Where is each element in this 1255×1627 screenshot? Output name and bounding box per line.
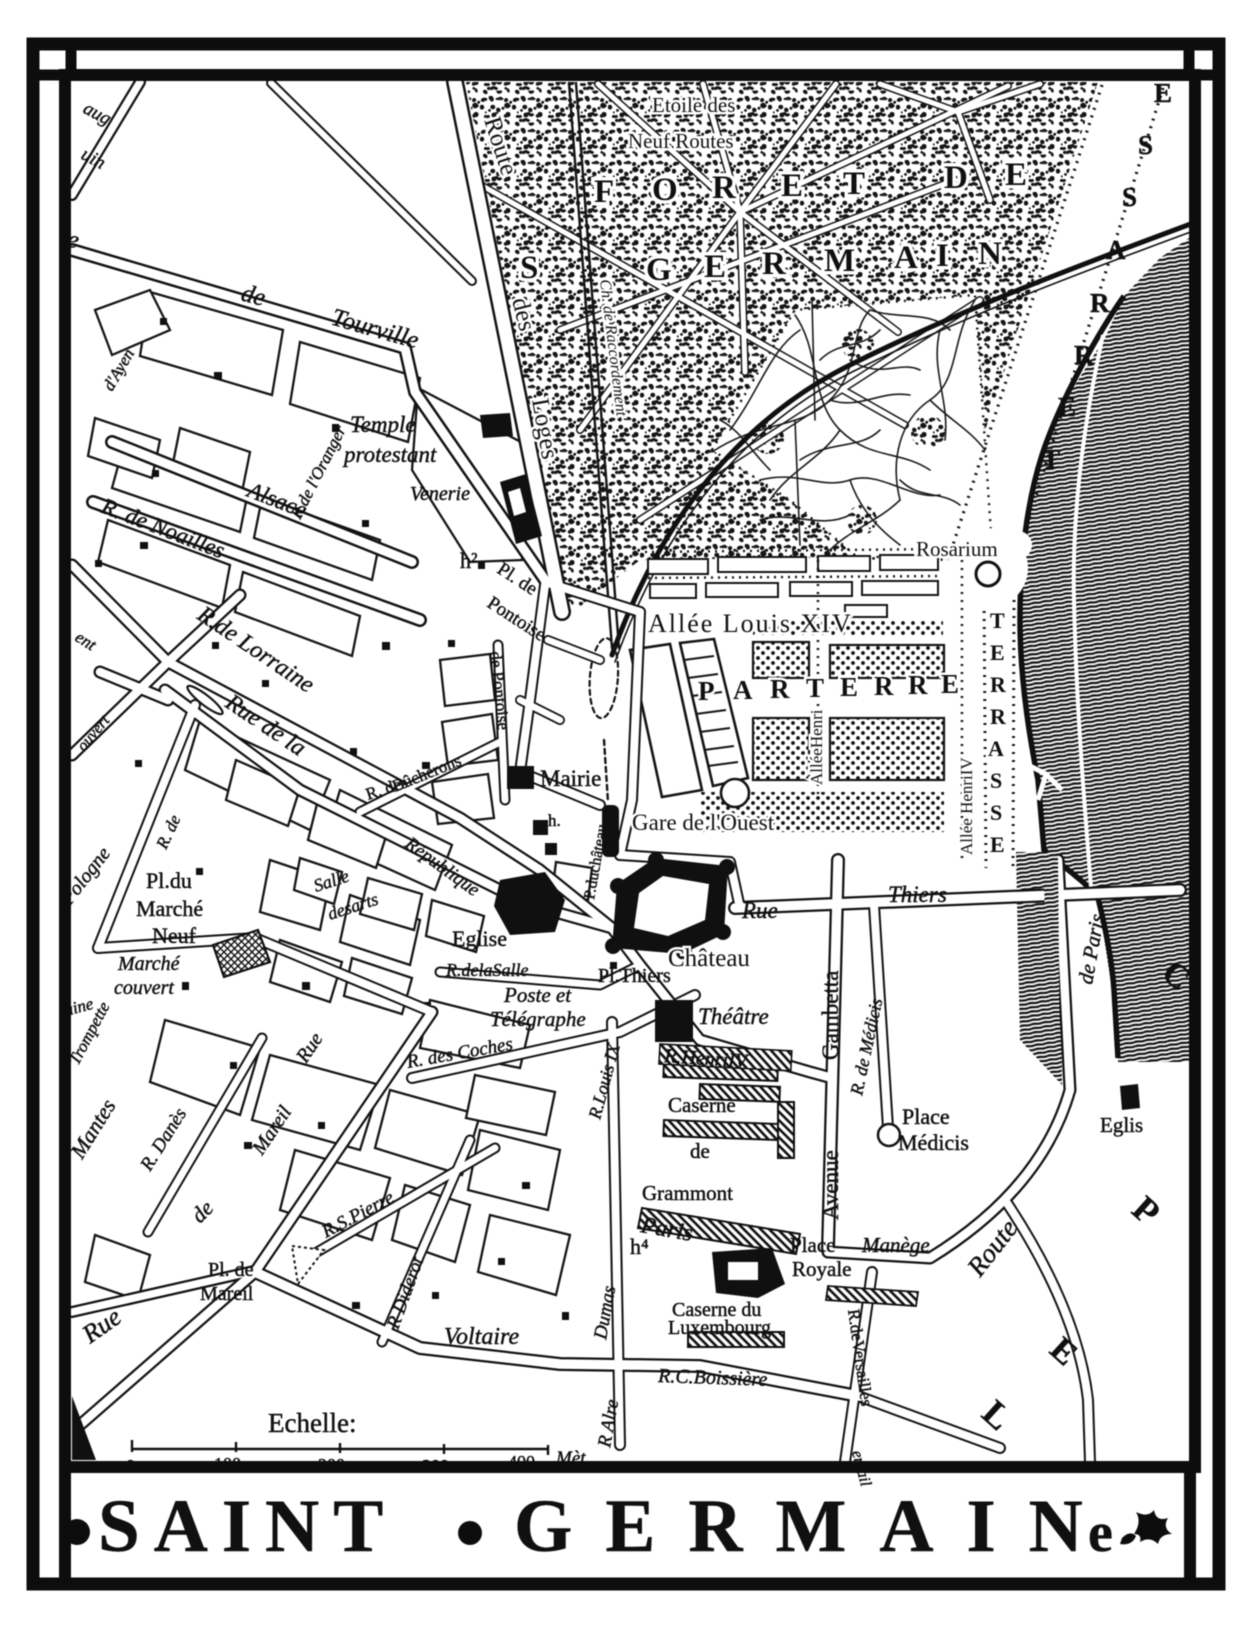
svg-text:Place: Place [902, 1104, 950, 1129]
svg-text:M: M [824, 243, 855, 279]
svg-text:h²: h² [460, 548, 478, 573]
svg-text:Royale: Royale [792, 1257, 851, 1281]
svg-text:S: S [1122, 182, 1137, 212]
svg-text:A: A [1106, 235, 1126, 265]
svg-text:A: A [988, 736, 1004, 761]
svg-text:Rue: Rue [741, 898, 778, 923]
svg-text:D: D [944, 160, 968, 196]
svg-text:E: E [990, 640, 1005, 665]
svg-text:Etoile des: Etoile des [652, 93, 735, 117]
svg-text:Temple: Temple [350, 412, 416, 437]
svg-text:Luxembourg: Luxembourg [668, 1317, 771, 1339]
svg-text:E: E [781, 168, 803, 204]
svg-text:Gare de l'Ouest: Gare de l'Ouest [632, 810, 775, 835]
svg-text:N: N [978, 236, 1002, 272]
svg-text:Pl.Thiers: Pl.Thiers [598, 965, 671, 987]
svg-text:R: R [1074, 340, 1094, 370]
svg-text:Place: Place [790, 1233, 835, 1257]
svg-text:Mareil: Mareil [200, 1283, 254, 1305]
svg-text:T: T [1042, 444, 1060, 474]
svg-text:Mairie: Mairie [540, 766, 601, 791]
svg-text:GERMAIN: GERMAIN [514, 1485, 1116, 1568]
svg-text:S: S [990, 800, 1002, 825]
svg-text:F: F [594, 174, 614, 210]
svg-text:S: S [520, 250, 538, 286]
svg-text:Pl.du: Pl.du [146, 868, 192, 893]
svg-text:Marché: Marché [136, 896, 203, 921]
svg-text:R: R [990, 704, 1007, 729]
svg-text:Médicis: Médicis [898, 1130, 969, 1155]
svg-text:Eglis: Eglis [1100, 1113, 1143, 1137]
svg-text:Théâtre: Théâtre [698, 1004, 769, 1029]
svg-text:R.C.Boissière: R.C.Boissière [657, 1365, 768, 1391]
svg-text:T: T [843, 166, 865, 202]
svg-text:h⁴: h⁴ [630, 1234, 649, 1259]
svg-text:P: P [698, 676, 715, 706]
svg-text:Poste et: Poste et [503, 983, 572, 1007]
svg-text:E: E [1154, 78, 1172, 108]
svg-text:R: R [1090, 288, 1110, 318]
svg-text:R: R [990, 672, 1007, 697]
svg-text:E: E [990, 832, 1005, 857]
svg-text:SAINT: SAINT [98, 1485, 397, 1568]
svg-text:Voltaire: Voltaire [444, 1324, 519, 1350]
svg-text:Rosarium: Rosarium [916, 537, 998, 561]
svg-text:A: A [894, 240, 918, 276]
svg-text:E: E [1005, 157, 1027, 193]
svg-text:R: R [712, 170, 737, 206]
svg-text:S: S [990, 768, 1002, 793]
svg-text:R: R [908, 670, 928, 700]
svg-text:Neuf: Neuf [152, 923, 197, 948]
svg-text:Château: Château [668, 945, 750, 972]
svg-text:Eglise: Eglise [452, 926, 507, 951]
svg-text:Thiers: Thiers [888, 882, 947, 907]
svg-text:Allée HenriIV: Allée HenriIV [957, 757, 976, 855]
svg-text:S: S [1138, 130, 1153, 160]
svg-text:E: E [704, 249, 726, 285]
svg-text:Allée Louis XIV: Allée Louis XIV [648, 609, 853, 638]
svg-text:Grammont: Grammont [642, 1181, 733, 1205]
svg-text:G: G [646, 252, 672, 288]
svg-text:E: E [941, 669, 959, 699]
svg-text:Caserne: Caserne [668, 1093, 736, 1117]
svg-text:Echelle:: Echelle: [268, 1408, 356, 1438]
svg-text:Venerie: Venerie [410, 483, 470, 505]
svg-text:Neuf Routes: Neuf Routes [628, 129, 734, 153]
svg-text:Pl. de: Pl. de [208, 1259, 254, 1281]
svg-text:E: E [840, 672, 858, 702]
svg-text:E: E [1058, 392, 1076, 422]
svg-text:Manège: Manège [861, 1233, 930, 1257]
svg-text:e: e [1088, 1502, 1113, 1564]
svg-text:A: A [733, 675, 753, 705]
svg-text:Télégraphe: Télégraphe [490, 1007, 586, 1031]
svg-text:R.delaSalle: R.delaSalle [445, 960, 528, 980]
svg-text:de: de [690, 1139, 710, 1163]
svg-text:protestant: protestant [342, 442, 437, 467]
svg-text:T: T [806, 673, 824, 703]
svg-text:R: R [762, 246, 787, 282]
svg-text:R: R [770, 674, 790, 704]
svg-text:AlléeHenri: AlléeHenri [807, 709, 826, 785]
svg-text:Gambetta: Gambetta [818, 971, 843, 1060]
svg-text:h.: h. [548, 811, 561, 830]
svg-text:Marché: Marché [117, 953, 181, 975]
svg-text:Avenue: Avenue [818, 1150, 843, 1220]
svg-text:O: O [652, 172, 678, 208]
svg-text:I: I [936, 238, 949, 274]
svg-text:R: R [874, 671, 894, 701]
svg-text:T: T [990, 608, 1005, 633]
svg-text:couvert: couvert [114, 977, 174, 999]
